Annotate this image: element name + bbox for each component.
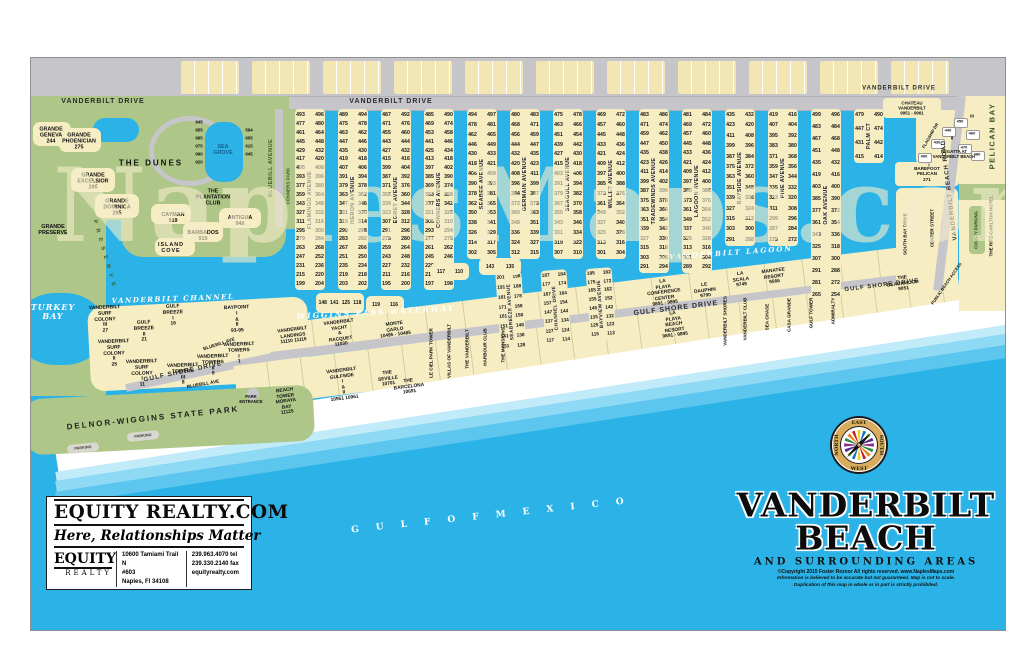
lot-number: 344 <box>788 174 797 180</box>
street-label: WILLET AVENUE <box>608 160 614 209</box>
finger-strip: 4694574454334214093973853733613493373253… <box>596 109 626 259</box>
lot-number: 419 <box>769 112 778 118</box>
lot-number: 332 <box>315 210 324 216</box>
lot-number: 471 <box>530 122 539 128</box>
lot-number: 361 <box>812 220 821 226</box>
lot-number-column-left: 4754634514394274154033913793673553433313… <box>553 112 564 256</box>
lot-number: 280 <box>401 236 410 242</box>
lot-number: 338 <box>468 220 477 226</box>
lot-number: 277 <box>425 236 434 242</box>
lot-number: 289 <box>683 264 692 270</box>
lot-number: 414 <box>874 154 883 160</box>
lot-number: 496 <box>831 112 840 118</box>
lot-number: 364 <box>702 207 711 213</box>
lot-number: 330 <box>358 210 367 216</box>
lot-number-column-right: 4724604484364244124003883763643523403283… <box>615 112 626 256</box>
lot-number: 441 <box>425 139 434 145</box>
lot-number: 409 <box>597 161 606 167</box>
lot-number: 385 <box>812 196 821 202</box>
lot-number: 328 <box>702 236 711 242</box>
beachfront-condo-vertical-label: ADMIRALTY <box>830 298 835 325</box>
lot-number: 252 <box>315 254 324 260</box>
lot-number: 468 <box>831 136 840 142</box>
lot-number: 227 <box>382 263 391 269</box>
lot-number: 294 <box>444 228 453 234</box>
lot-number: 444 <box>511 142 520 148</box>
lot-number: 315 <box>726 216 735 222</box>
lot-number: 478 <box>573 112 582 118</box>
lot-number: 390 <box>468 181 477 187</box>
lot-number: 348 <box>745 185 754 191</box>
lot-number: 471 <box>382 121 391 127</box>
lot-number: 284 <box>315 236 324 242</box>
lot-number: 365 <box>487 201 496 207</box>
lot-number: 494 <box>468 112 477 118</box>
lot-number-column-right: 4864744624504384264144023903783663543423… <box>658 112 669 270</box>
lot-number-column-right: 4844724604484364244124003883763643523403… <box>701 112 712 270</box>
beachfront-condo-vertical-label: SEA CHASE <box>764 304 769 331</box>
lot-number: 302 <box>468 250 477 256</box>
lot-number: 144 <box>560 309 568 315</box>
beachfront-condo-vertical-label: LE CIEL PARK TOWER <box>428 328 433 378</box>
lot-number: 181 <box>498 295 506 301</box>
lot-number: 278 <box>444 236 453 242</box>
lot-number: 371 <box>382 183 391 189</box>
lot-number: 184 <box>558 272 566 278</box>
lot-number: 346 <box>573 220 582 226</box>
lot-number: 348 <box>511 220 520 226</box>
lot-number: 396 <box>315 174 324 180</box>
lot-number: 442 <box>874 140 883 146</box>
lot-number: 281 <box>812 280 821 286</box>
lot-number: 310 <box>573 250 582 256</box>
lot-number: 332 <box>788 185 797 191</box>
lot-number: 478 <box>468 122 477 128</box>
lot-number: 483 <box>640 112 649 118</box>
lot-number: 468 <box>511 122 520 128</box>
lot-number-column-right: 490474442414 <box>873 112 884 160</box>
lot-number: 489 <box>339 112 348 118</box>
top-parcel-block <box>749 61 807 94</box>
lot-number: 203 <box>339 281 348 287</box>
lot-number: 455 <box>382 130 391 136</box>
regatta-phase-label: II <box>951 135 954 140</box>
lot-number: 448 <box>831 148 840 154</box>
lot-number-column-right: 4974814654494334214093933813653533413293… <box>486 112 497 256</box>
lot-number: 432 <box>745 112 754 118</box>
lot-number: 426 <box>659 160 668 166</box>
lot-number: 396 <box>511 181 520 187</box>
lot-number: 475 <box>554 112 563 118</box>
dunes-label: BARBADOS 919 <box>187 230 218 242</box>
lot-number: 326 <box>468 230 477 236</box>
turkey-bay-label: TURKEY BAY <box>31 303 75 321</box>
contact-tel: 239.963.4070 tel <box>192 551 239 560</box>
beachfront-condo-label: VANDERBILT GULFSIDE I & II 10951 10961 <box>326 367 360 404</box>
lot-number: 423 <box>640 160 649 166</box>
lot-number: 301 <box>597 250 606 256</box>
lot-number: 399 <box>726 143 735 149</box>
lot-number: 359 <box>296 192 305 198</box>
lot-number: 490 <box>444 112 453 118</box>
lot-number: 316 <box>315 219 324 225</box>
lot-number: 142 <box>605 305 613 311</box>
lot-number: 460 <box>401 130 410 136</box>
lot-number-column-right: 4964844684484324164003903723543363183002… <box>830 112 841 298</box>
lot-number: 220 <box>315 272 324 278</box>
lot-number: 424 <box>616 151 625 157</box>
lot-number: 371 <box>769 154 778 160</box>
conners-park-label: CONNERS PARK <box>285 168 290 205</box>
lot-number: 324 <box>745 206 754 212</box>
lot-number: 393 <box>487 181 496 187</box>
lot-number: 399 <box>382 165 391 171</box>
finger-strip: 4894754634474354194073913793633473313152… <box>338 109 368 290</box>
lot-number: 336 <box>511 230 520 236</box>
gulf-of-mexico-label: G U L F O F M E X I C O <box>351 496 632 536</box>
lot-number: 362 <box>358 192 367 198</box>
lot-number: 493 <box>296 112 305 118</box>
lot-number: 292 <box>702 264 711 270</box>
dunes-label: GRANDE GENEVA 244 <box>39 127 62 146</box>
south-bay-drive-label: SOUTH BAY DRIVE <box>902 213 907 255</box>
lot-number: 472 <box>616 112 625 118</box>
lot-number: 284 <box>788 226 797 232</box>
lot-number: 376 <box>702 198 711 204</box>
lot-number: 449 <box>487 142 496 148</box>
lot-number: 459 <box>530 132 539 138</box>
lot-number: 243 <box>382 254 391 260</box>
lot-number: 420 <box>745 122 754 128</box>
address-line3: Naples, Fl 34108 <box>122 578 181 587</box>
lot-number: 219 <box>339 272 348 278</box>
lot-number: 439 <box>554 142 563 148</box>
lot-number-column-right: 4904744584464344184023903743583423263102… <box>443 112 454 287</box>
lot-number-column-left: 4804684564444324204083963843723603483363… <box>510 112 521 256</box>
lot-number: 378 <box>659 198 668 204</box>
lot-number: 377 <box>296 183 305 189</box>
bayside-condo-label: VANDERBILT YACHT & RACQUET 11030 <box>323 318 356 349</box>
lot-number: 112 <box>607 331 615 337</box>
lot-number: 490 <box>874 112 883 118</box>
bluebill-avenue-label: BLUEBILL AVENUE <box>268 139 274 197</box>
lot-number: 343 <box>296 201 305 207</box>
lot-number: 483 <box>812 124 821 130</box>
lot-number: 331 <box>339 210 348 216</box>
beachfront-condo-vertical-label: VANDERBILT SHORES <box>722 296 727 346</box>
lot-number: 347 <box>339 201 348 207</box>
lot-number: 375 <box>640 198 649 204</box>
lot-number: 177 <box>542 283 550 289</box>
lot-number: 446 <box>468 142 477 148</box>
lot-number: 325 <box>683 236 692 242</box>
lot-number: 191 <box>497 285 505 291</box>
lot-number: 399 <box>640 179 649 185</box>
lot-number: 367 <box>554 201 563 207</box>
lot-number: 303 <box>640 255 649 261</box>
lot-number: 424 <box>702 160 711 166</box>
lot-number: 147 <box>544 310 552 316</box>
lot-number: 463 <box>339 130 348 136</box>
lot-number: 432 <box>315 148 324 154</box>
lot-number: 172 <box>603 279 611 285</box>
street-label: GERMAIN AVENUE <box>522 157 528 211</box>
street-label: FLAMINGO AVENUE <box>307 170 313 228</box>
lot-number: 348 <box>315 201 324 207</box>
lot-number: 392 <box>401 174 410 180</box>
top-parcel-block <box>323 61 381 94</box>
lot-number: 411 <box>530 171 538 177</box>
finger-strip: 4194073953833713593473353233112992872754… <box>768 109 798 246</box>
lot-number: 296 <box>788 216 797 222</box>
lot-number: 288 <box>831 268 840 274</box>
lot-number: 464 <box>315 130 324 136</box>
lot-number: 375 <box>530 201 539 207</box>
contact-fax: 239.330.2140 fax <box>192 560 239 569</box>
lot-number: 385 <box>683 188 692 194</box>
street-label: HERON AVENUE <box>350 176 356 224</box>
finger-strip: 4934774614454294174053933773593433273112… <box>295 109 325 290</box>
lot-number: 462 <box>468 132 477 138</box>
lot-number: 430 <box>573 151 582 157</box>
lot-number: 397 <box>683 179 692 185</box>
lot-number: 326 <box>444 210 453 216</box>
lot-number: 347 <box>769 174 778 180</box>
lot-number: 418 <box>468 161 477 167</box>
lot-number: 330 <box>659 236 668 242</box>
map-copyright: ©Copyright 2015 Foster Reznor All rights… <box>746 569 986 589</box>
lot-number: 368 <box>788 154 797 160</box>
lot-number: 417 <box>296 156 305 162</box>
lot-number: 446 <box>358 139 367 145</box>
lot-number-column-left: 4854694534414254133973853693533373213052… <box>424 112 435 287</box>
canal-islet: 117110 <box>431 263 469 280</box>
lot-number: 379 <box>339 183 348 189</box>
lot-number: 185 <box>587 271 595 277</box>
park-entrance-label: PARK ENTRANCE <box>239 395 262 405</box>
lot-number: 405 <box>296 165 305 171</box>
lot-number: 445 <box>296 139 305 145</box>
ritz-carlton-label: THE RITZ-CARLTON HOTEL <box>988 195 993 256</box>
lot-number: 494 <box>358 112 367 118</box>
lot-number: 415 <box>855 154 864 160</box>
lot-number: 378 <box>358 183 367 189</box>
lot-number: 372 <box>831 208 840 214</box>
lot-number: 404 <box>788 122 797 128</box>
lot-number: 336 <box>831 232 840 238</box>
lot-number: 474 <box>874 126 883 132</box>
lot-number: 486 <box>659 112 668 118</box>
beachfront-condo-vertical-label: HARBOUR CLUB <box>482 328 487 366</box>
lot-number: 390 <box>831 196 840 202</box>
lot-number: 323 <box>382 210 391 216</box>
lot-number: 246 <box>444 254 453 260</box>
lot-number: 465 <box>487 132 496 138</box>
lot-number: 316 <box>616 240 625 246</box>
lot-number: 456 <box>511 132 520 138</box>
lot-number: 432 <box>511 151 520 157</box>
sea-grove-number: 605 <box>245 135 252 140</box>
lot-number: 267 <box>339 245 348 251</box>
lot-number: 355 <box>554 210 563 216</box>
vanderbilt-drive-label-west: VANDERBILT DRIVE <box>61 98 144 106</box>
lot-number: 157 <box>544 301 552 307</box>
lot-number: 462 <box>659 131 668 137</box>
lot-number: 453 <box>425 130 434 136</box>
lot-number: 353 <box>425 192 434 198</box>
lot-number: 469 <box>425 121 434 127</box>
equity-address: 10600 Tamiami Trail N #603 Naples, Fl 34… <box>117 551 187 587</box>
lot-number: 399 <box>530 181 539 187</box>
lot-number: 391 <box>554 181 563 187</box>
street-label: CONNERS AVENUE <box>436 172 442 228</box>
lot-number: 168 <box>514 304 522 310</box>
lot-number: 380 <box>788 143 797 149</box>
street-label: EGRET AVENUE <box>393 176 399 223</box>
lot-number: 385 <box>425 174 434 180</box>
lot-number: 433 <box>487 151 496 157</box>
lot-number: 402 <box>659 179 668 185</box>
lot-number: 435 <box>726 112 735 118</box>
lot-number: 307 <box>812 256 821 262</box>
lot-number: 472 <box>702 122 711 128</box>
lot-number: 361 <box>683 207 692 213</box>
lot-number: 377 <box>812 208 821 214</box>
lot-number: 438 <box>659 150 668 156</box>
lot-number: 317 <box>487 240 496 246</box>
lot-number: 334 <box>573 230 582 236</box>
lot-number: 231 <box>296 263 305 269</box>
beachfront-condo-vertical-label: VILLAS OF VANDERBILT <box>446 324 451 378</box>
address-line2: #603 <box>122 569 181 578</box>
lot-number: 432 <box>401 148 410 154</box>
bluebill-avenue-road <box>275 109 283 227</box>
lot-number: 363 <box>339 192 348 198</box>
lot-number: 408 <box>745 133 754 139</box>
lot-number: 307 <box>554 250 563 256</box>
lot-number: 447 <box>339 139 348 145</box>
lot-number: 272 <box>788 237 797 243</box>
lot-number: 383 <box>769 143 778 149</box>
lot-number: 331 <box>554 230 563 236</box>
beachfront-condo-vertical-label: THE MANSIONS <box>500 327 505 362</box>
lot-number: 403 <box>812 184 821 190</box>
lot-number-column-left: 4834714594474354234113993873753633513393… <box>639 112 650 270</box>
lot-number: 291 <box>726 237 735 243</box>
lot-number: 324 <box>511 240 520 246</box>
lot-number: 128 <box>517 343 525 349</box>
lot-number: 469 <box>597 112 606 118</box>
island-community-label: GULF BREEZE I 16 <box>162 304 183 328</box>
sea-grove-number: 945 <box>195 119 202 124</box>
lot-number: 218 <box>358 272 367 278</box>
lot-number: 430 <box>358 148 367 154</box>
vanderbilt-drive-label-east: VANDERBILT DRIVE <box>862 86 936 93</box>
lot-number: 329 <box>487 230 496 236</box>
lot-number: 462 <box>358 130 367 136</box>
regatta-building-number: 440 <box>945 129 952 134</box>
lot-number: 344 <box>401 201 410 207</box>
island-community-label: BAYPOINT I & II 93-95 <box>224 305 250 335</box>
lot-number: 474 <box>444 121 453 127</box>
equity-contact: 239.963.4070 tel 239.330.2140 fax equity… <box>187 551 244 587</box>
lot-number-column-left: 4894754634474354194073913793633473313152… <box>338 112 349 287</box>
lot-number: 412 <box>616 161 625 167</box>
finger-strip: 4834714594474354234113993873753633513393… <box>639 109 669 273</box>
lot-number: 303 <box>726 226 735 232</box>
lot-number: 115 <box>591 332 599 338</box>
lot-number-column-left: 479447431415 <box>854 112 865 160</box>
lot-number-column-left: 4934774614454294174053933773593433273112… <box>295 112 306 287</box>
bayside-condo-label: LA SCALA 9749 <box>732 271 750 289</box>
lot-number: 479 <box>855 112 864 118</box>
lot-number: 436 <box>616 142 625 148</box>
island-community-label: VANDERBILT TOWERS I 1 <box>223 342 255 366</box>
lot-number: 250 <box>358 254 367 260</box>
lot-number: 275 <box>769 237 778 243</box>
finger-strip: 479447431415490474442414PALM CT <box>854 109 884 163</box>
right-green-band <box>959 184 1006 200</box>
lot-number: 198 <box>512 274 520 280</box>
street-label: OAK AVENUE <box>823 185 829 224</box>
lot-number: 138 <box>517 333 525 339</box>
lot-number: 351 <box>726 185 735 191</box>
lot-number: 419 <box>812 172 821 178</box>
lot-number: 390 <box>659 188 668 194</box>
street-label: PALM CT <box>866 123 872 149</box>
dunes-label: GRANDE DOMINICA 295 <box>103 199 130 218</box>
lot-number: 433 <box>597 142 606 148</box>
copyright-line1: ©Copyright 2015 Foster Reznor All rights… <box>746 569 986 576</box>
lot-number: 148 <box>319 300 327 306</box>
lot-number: 340 <box>616 220 625 226</box>
lot-number: 311 <box>769 206 777 212</box>
lot-number: 117 <box>437 269 445 275</box>
lot-number: 318 <box>659 245 668 251</box>
equity-realty-block: EQUITY REALTY.COM Here, Relationships Ma… <box>46 496 252 590</box>
street-label: PINE AVENUE <box>780 157 786 197</box>
lot-number: 275 <box>382 236 391 242</box>
barefoot-pelican-label: BAREFOOT PELICAN 271 <box>914 166 940 182</box>
lot-number: 394 <box>573 181 582 187</box>
lot-number-column-right: 4834714594474354234113993873753633513393… <box>529 112 540 256</box>
lot-number-column-left: 4874714554434274153993873713553393233072… <box>381 112 392 287</box>
lot-number: 161 <box>499 315 507 321</box>
lot-number-column-left: 419407395383371359347335323311299287275 <box>768 112 779 243</box>
lot-number: 351 <box>640 217 649 223</box>
lot-number: 460 <box>616 122 625 128</box>
lot-number: 416 <box>788 112 797 118</box>
lot-number: 352 <box>616 210 625 216</box>
lot-number: 492 <box>401 112 410 118</box>
lot-number: 433 <box>683 150 692 156</box>
lot-number: 293 <box>425 228 434 234</box>
lot-number: 305 <box>487 250 496 256</box>
lot-number: 375 <box>726 164 735 170</box>
dunes-label: GRANDE PRESERVE <box>38 224 67 236</box>
lot-number: 134 <box>561 319 569 325</box>
lot-number: 197 <box>425 281 434 287</box>
lot-number: 263 <box>296 245 305 251</box>
finger-strip: 4354234113993873753633513393273153032914… <box>725 109 755 246</box>
lot-number: 118 <box>353 300 361 306</box>
finger-strip: 4804684564444324204083963843723603483363… <box>510 109 540 259</box>
street-label: SEABEE AVENUE <box>479 159 485 210</box>
lot-number: 448 <box>616 132 625 138</box>
sea-grove-number: 920 <box>195 159 202 164</box>
lot-number: 349 <box>597 210 606 216</box>
top-parcel-block <box>536 61 594 94</box>
